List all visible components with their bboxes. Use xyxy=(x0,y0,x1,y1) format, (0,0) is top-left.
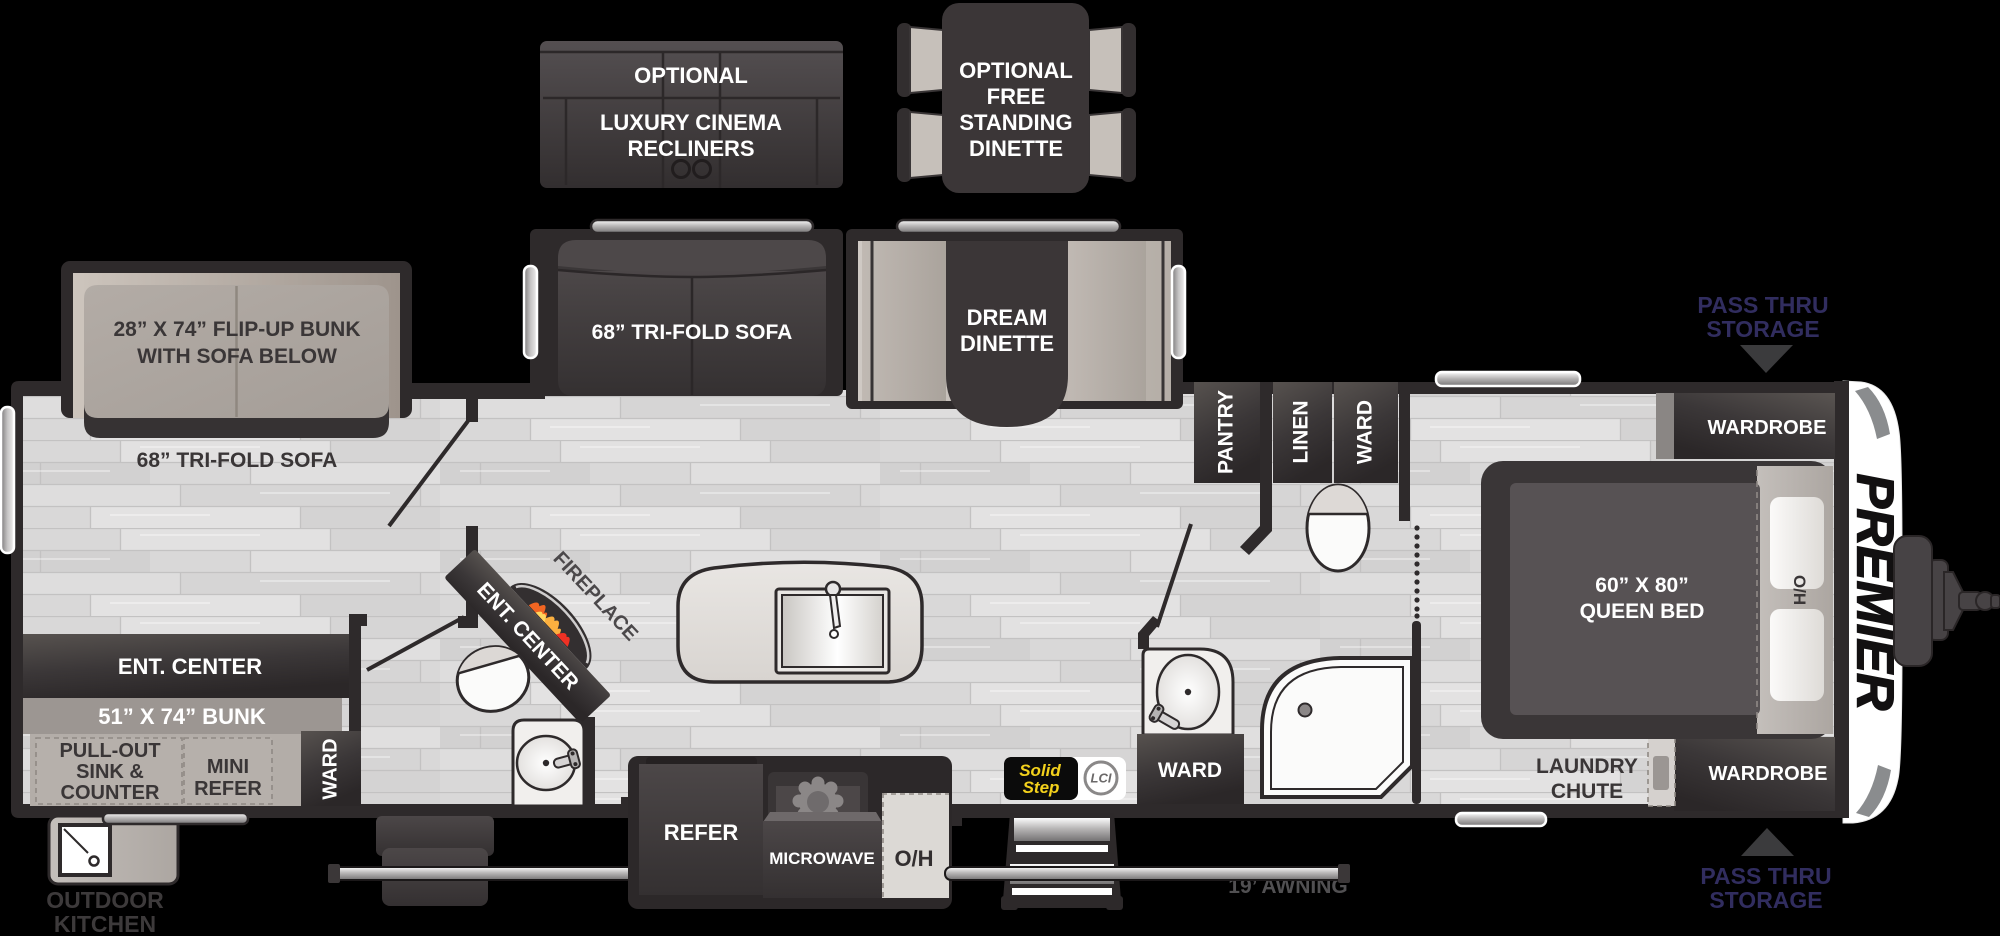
svg-text:MICROWAVE: MICROWAVE xyxy=(769,849,874,868)
svg-text:KITCHEN: KITCHEN xyxy=(54,911,156,936)
svg-text:QUEEN BED: QUEEN BED xyxy=(1580,600,1705,623)
svg-text:O/H: O/H xyxy=(894,846,933,871)
svg-text:WARDROBE: WARDROBE xyxy=(1708,417,1827,439)
svg-text:FREE: FREE xyxy=(987,84,1046,109)
svg-text:LINEN: LINEN xyxy=(1290,401,1313,464)
svg-text:PASS THRU: PASS THRU xyxy=(1700,863,1831,889)
svg-text:REFER: REFER xyxy=(664,820,739,845)
svg-text:OPTIONAL: OPTIONAL xyxy=(634,63,748,88)
svg-text:ENT. CENTER: ENT. CENTER xyxy=(118,654,262,679)
svg-text:Step: Step xyxy=(1023,778,1060,797)
svg-text:SINK &: SINK & xyxy=(76,761,144,783)
svg-text:LCI: LCI xyxy=(1091,770,1112,785)
svg-text:LUXURY CINEMA: LUXURY CINEMA xyxy=(600,110,782,135)
svg-text:WARD: WARD xyxy=(1354,400,1377,464)
svg-text:COUNTER: COUNTER xyxy=(61,782,160,804)
svg-text:WARD: WARD xyxy=(1158,759,1222,782)
svg-text:STANDING: STANDING xyxy=(959,110,1072,135)
svg-text:H/O: H/O xyxy=(1790,575,1809,605)
svg-text:OUTDOOR: OUTDOOR xyxy=(46,887,164,913)
svg-text:MINI: MINI xyxy=(207,756,249,778)
svg-text:PASS THRU: PASS THRU xyxy=(1697,292,1828,318)
svg-text:REFER: REFER xyxy=(194,778,262,800)
svg-text:CHUTE: CHUTE xyxy=(1551,780,1623,803)
svg-text:OPTIONAL: OPTIONAL xyxy=(959,58,1073,83)
svg-text:DREAM: DREAM xyxy=(967,305,1048,330)
svg-text:RECLINERS: RECLINERS xyxy=(627,136,754,161)
svg-text:DINETTE: DINETTE xyxy=(960,331,1054,356)
svg-text:WITH SOFA BELOW: WITH SOFA BELOW xyxy=(137,345,337,368)
svg-text:STORAGE: STORAGE xyxy=(1706,316,1819,342)
svg-text:WARD: WARD xyxy=(319,738,341,799)
svg-text:PULL-OUT: PULL-OUT xyxy=(59,740,160,762)
svg-text:28” X 74” FLIP-UP BUNK: 28” X 74” FLIP-UP BUNK xyxy=(113,318,360,341)
svg-text:PANTRY: PANTRY xyxy=(1215,390,1238,474)
svg-text:DINETTE: DINETTE xyxy=(969,136,1063,161)
svg-text:LAUNDRY: LAUNDRY xyxy=(1536,755,1638,778)
svg-text:STORAGE: STORAGE xyxy=(1709,887,1822,913)
svg-text:60” X 80”: 60” X 80” xyxy=(1595,574,1688,597)
svg-text:68” TRI-FOLD SOFA: 68” TRI-FOLD SOFA xyxy=(137,449,338,472)
svg-text:51” X 74” BUNK: 51” X 74” BUNK xyxy=(98,704,266,729)
svg-text:WARDROBE: WARDROBE xyxy=(1709,763,1828,785)
svg-text:68” TRI-FOLD SOFA: 68” TRI-FOLD SOFA xyxy=(592,321,793,344)
